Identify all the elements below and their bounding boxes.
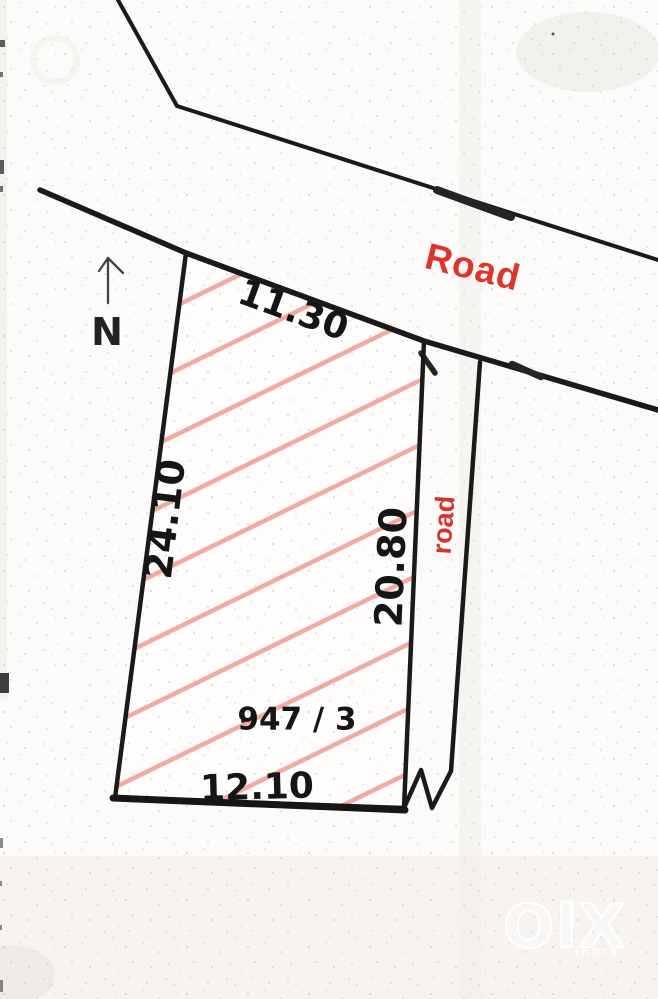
north-label: N xyxy=(91,313,123,351)
olx-watermark-country: INDIA xyxy=(575,948,621,958)
stray-ink-dot-2 xyxy=(552,33,555,36)
dimension-right-label: 20.80 xyxy=(369,506,412,628)
plot-sketch-image: Road road 11.30 24.10 20.80 12.10 947 / … xyxy=(0,0,658,999)
plot-sketch-canvas xyxy=(0,0,658,999)
plot-number-label: 947 / 3 xyxy=(237,705,356,736)
road-right-label: road xyxy=(428,495,459,555)
dimension-bottom-label: 12.10 xyxy=(200,769,315,808)
